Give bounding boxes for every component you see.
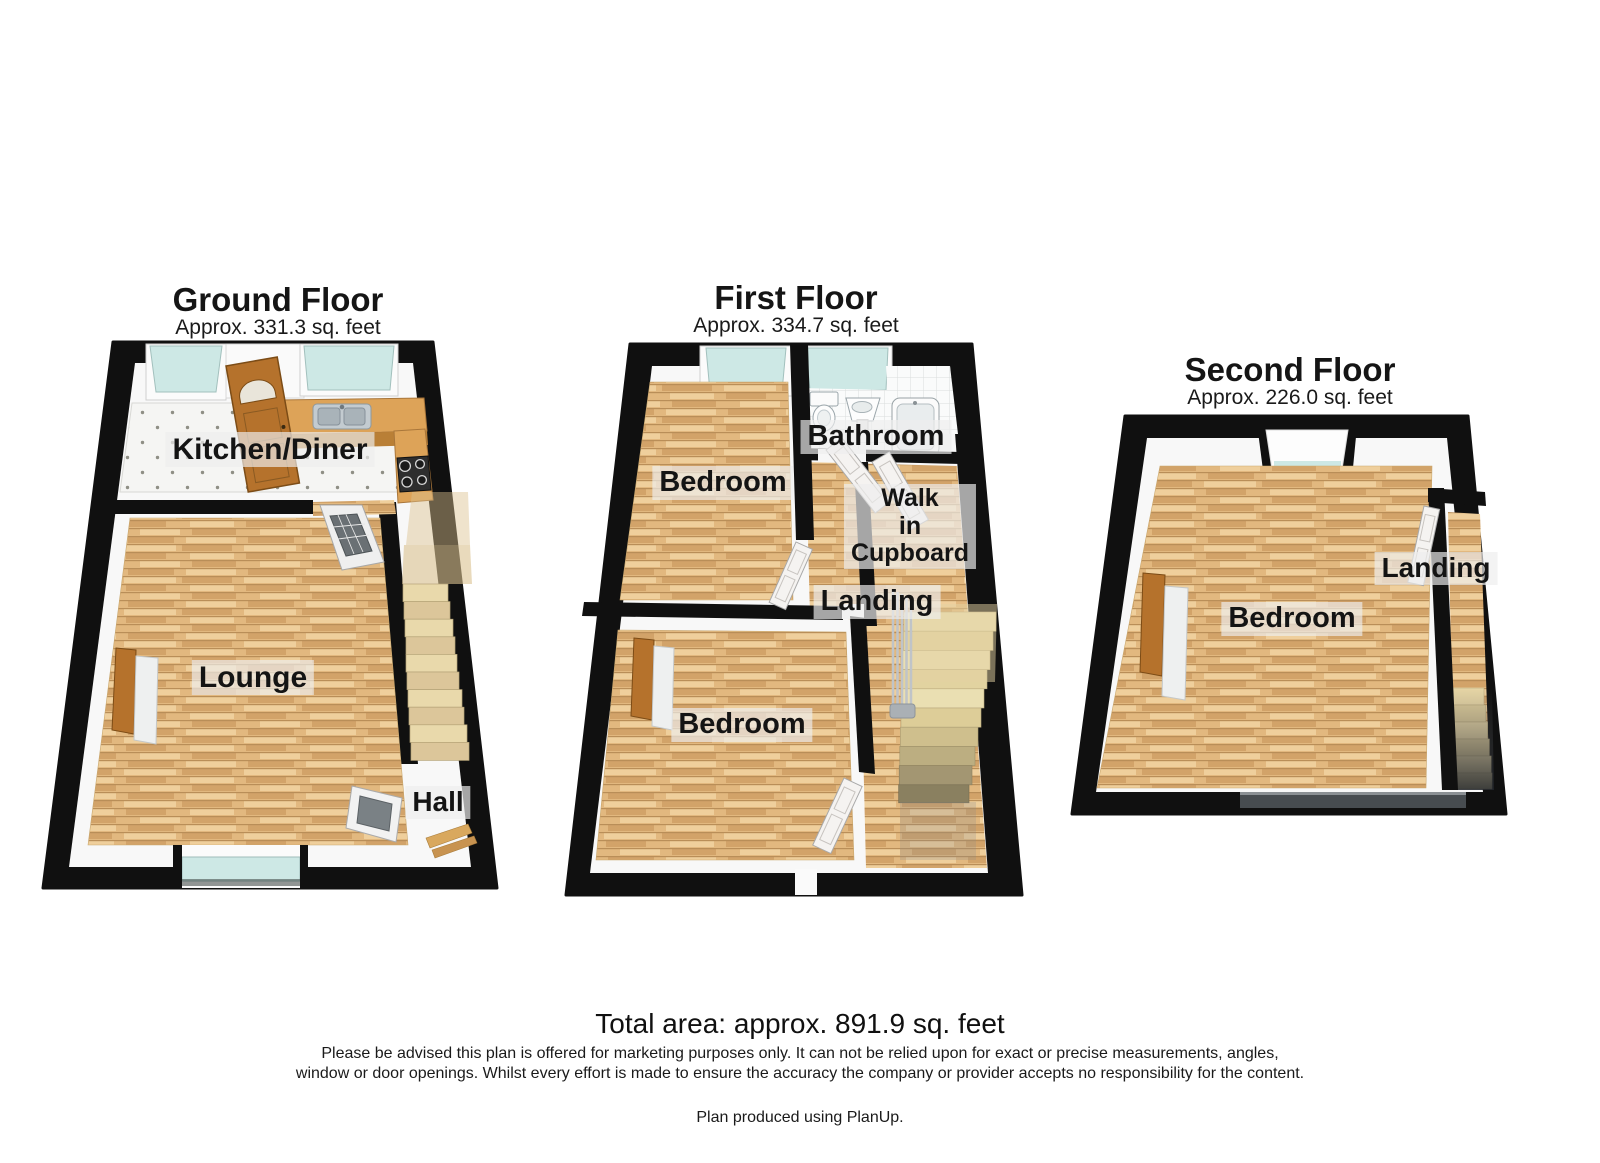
ground-window-right [300, 344, 398, 396]
lounge-sideboard [112, 648, 158, 744]
room-label-walk-in-cupboard: Walk in Cupboard [844, 484, 976, 569]
room-label-bedroom-2: Bedroom [671, 708, 812, 742]
walk-in-cupboard-line2: in [851, 513, 969, 541]
room-label-kitchen-diner: Kitchen/Diner [165, 432, 374, 467]
walk-in-cupboard-line1: Walk [851, 485, 969, 513]
ground-floor-title: Ground Floor [173, 281, 384, 319]
room-label-landing-1: Landing [814, 585, 941, 619]
walk-in-cupboard-line3: Cupboard [851, 540, 969, 568]
kitchen-stove [397, 456, 431, 492]
first-floor-area: Approx. 334.7 sq. feet [693, 314, 898, 338]
floorplan-page: Ground Floor Approx. 331.3 sq. feet Kitc… [0, 0, 1600, 1163]
ground-floor-area: Approx. 331.3 sq. feet [175, 316, 380, 340]
room-label-bathroom: Bathroom [801, 420, 952, 454]
room-label-hall: Hall [405, 786, 470, 819]
second-floor-title: Second Floor [1185, 351, 1396, 389]
second-floor-area: Approx. 226.0 sq. feet [1187, 386, 1392, 410]
second-bottom-sill [1240, 792, 1466, 808]
first-floor-plan-drawing [540, 330, 1025, 902]
disclaimer-text: Please be advised this plan is offered f… [295, 1044, 1305, 1084]
total-area-text: Total area: approx. 891.9 sq. feet [595, 1008, 1004, 1040]
room-label-landing-2: Landing [1375, 552, 1498, 585]
first-window-right [802, 346, 892, 394]
first-bottom-threshold [795, 869, 817, 895]
room-label-bedroom-3: Bedroom [1221, 602, 1362, 636]
produced-by-text: Plan produced using PlanUp. [696, 1108, 903, 1128]
bedroom2-sideboard [631, 638, 674, 730]
bay-window [173, 845, 308, 888]
first-floor-title: First Floor [714, 279, 877, 317]
room-label-lounge: Lounge [192, 660, 314, 695]
room-label-bedroom-1: Bedroom [652, 466, 793, 500]
kitchen-sink [313, 404, 371, 429]
ground-window-left [146, 344, 226, 400]
